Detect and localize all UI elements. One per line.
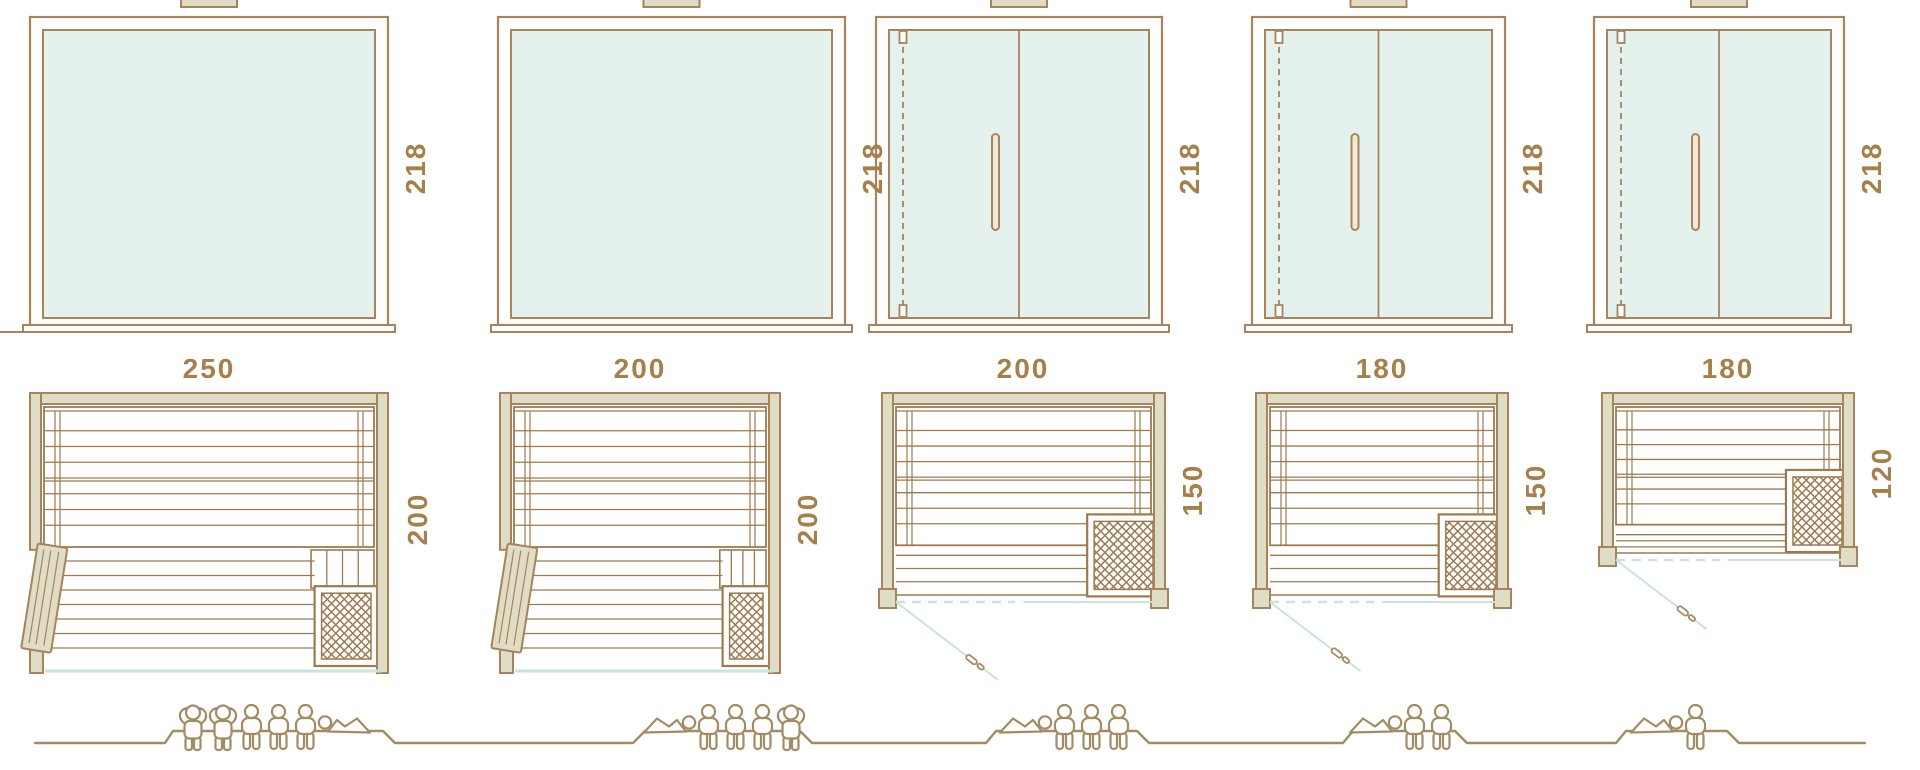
depth-label-model-2: 200 — [794, 493, 822, 546]
depth-label-model-4: 150 — [1522, 464, 1550, 517]
capacity-icons-model-5 — [1631, 705, 1705, 749]
capacity-icons-model-2 — [644, 705, 804, 750]
depth-label-model-5: 120 — [1868, 447, 1896, 500]
elevation-model-3 — [869, 0, 1169, 332]
height-label-model-2: 218 — [859, 142, 887, 195]
height-label-model-1: 218 — [402, 142, 430, 195]
diagram-canvas — [0, 0, 1920, 770]
height-label-model-5: 218 — [1858, 142, 1886, 195]
elevation-model-1 — [23, 0, 395, 332]
elevation-model-5 — [1587, 0, 1851, 332]
width-label-model-1: 250 — [183, 355, 236, 383]
capacity-icons-model-3 — [1000, 705, 1128, 749]
width-label-model-4: 180 — [1356, 355, 1409, 383]
height-label-model-4: 218 — [1519, 142, 1547, 195]
width-label-model-2: 200 — [614, 355, 667, 383]
elevation-model-2 — [491, 0, 852, 332]
floor-plan-model-5 — [1599, 393, 1857, 629]
capacity-icons-model-4 — [1350, 705, 1451, 749]
capacity-icons-model-1 — [180, 705, 370, 750]
width-label-model-3: 200 — [997, 355, 1050, 383]
floor-plan-model-4 — [1253, 393, 1511, 671]
height-label-model-3: 218 — [1176, 142, 1204, 195]
sauna-size-diagram: 250 200 200 180 180 218 218 218 218 218 … — [0, 0, 1920, 770]
depth-label-model-3: 150 — [1179, 464, 1207, 517]
floor-plan-model-1 — [21, 393, 388, 673]
floor-plan-model-3 — [879, 393, 1168, 680]
floor-plan-model-2 — [491, 393, 780, 673]
width-label-model-5: 180 — [1702, 355, 1755, 383]
elevation-model-4 — [1245, 0, 1512, 332]
depth-label-model-1: 200 — [404, 493, 432, 546]
